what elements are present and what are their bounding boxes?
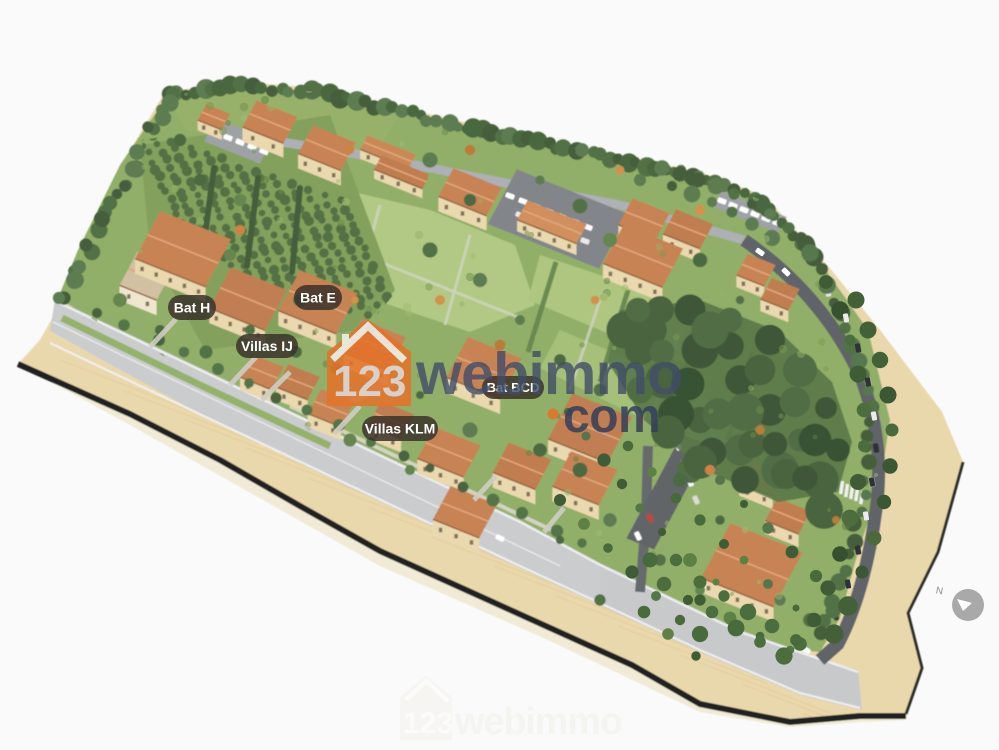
svg-text:com: com	[563, 390, 660, 443]
svg-text:Villas IJ: Villas IJ	[241, 338, 293, 354]
svg-text:Bat H: Bat H	[174, 300, 211, 316]
svg-text:123: 123	[403, 707, 453, 740]
svg-text:Bat E: Bat E	[300, 290, 336, 306]
svg-text:webimmo: webimmo	[454, 701, 622, 743]
svg-text:123: 123	[333, 357, 406, 406]
svg-text:Villas KLM: Villas KLM	[365, 421, 436, 437]
